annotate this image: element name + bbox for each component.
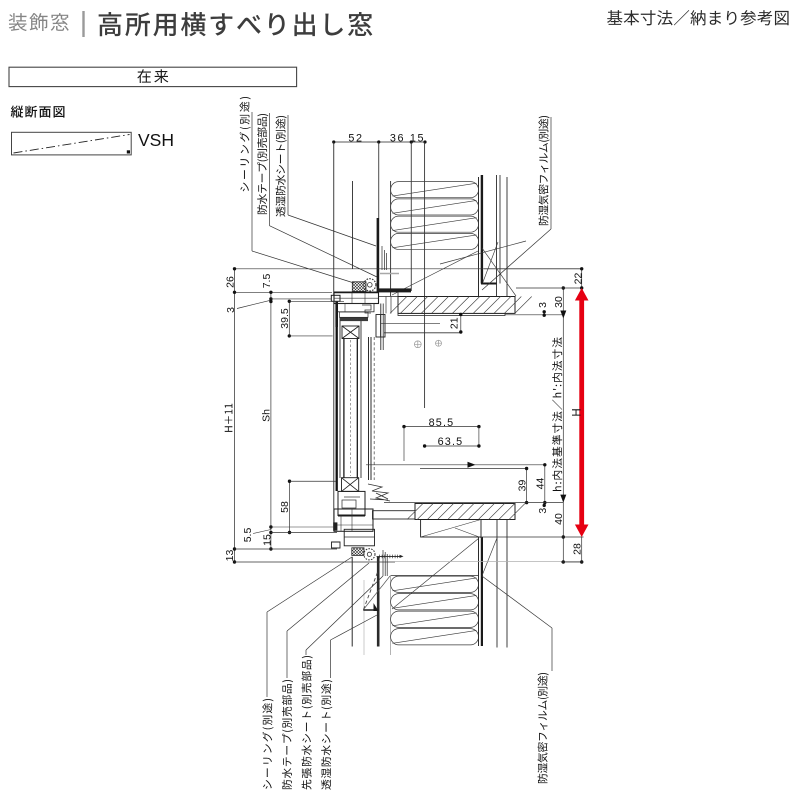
svg-text:3: 3 bbox=[537, 302, 549, 308]
svg-text:22: 22 bbox=[572, 273, 584, 285]
svg-text:7.5: 7.5 bbox=[261, 274, 273, 289]
svg-text:VSH: VSH bbox=[138, 130, 174, 150]
svg-text:26: 26 bbox=[224, 276, 236, 288]
svg-text:3: 3 bbox=[537, 508, 549, 514]
svg-text:H: H bbox=[571, 408, 583, 416]
svg-text:15: 15 bbox=[410, 133, 425, 145]
svg-text:85.5: 85.5 bbox=[429, 417, 455, 429]
svg-text:30: 30 bbox=[553, 296, 565, 308]
svg-text:44: 44 bbox=[535, 478, 547, 490]
svg-text:13: 13 bbox=[224, 550, 236, 562]
svg-text:39.5: 39.5 bbox=[279, 308, 291, 329]
svg-text:5.5: 5.5 bbox=[242, 528, 254, 543]
svg-text:3: 3 bbox=[225, 307, 237, 313]
svg-text:58: 58 bbox=[279, 501, 291, 513]
svg-text:Sh: Sh bbox=[260, 409, 272, 422]
svg-text:52: 52 bbox=[348, 133, 363, 145]
svg-text:63.5: 63.5 bbox=[438, 436, 464, 448]
svg-text:39: 39 bbox=[516, 480, 528, 492]
svg-text:36: 36 bbox=[390, 133, 405, 145]
svg-text:15: 15 bbox=[261, 534, 273, 546]
svg-text:28: 28 bbox=[572, 543, 584, 555]
svg-text:40: 40 bbox=[553, 513, 565, 525]
svg-text:21: 21 bbox=[449, 317, 461, 329]
